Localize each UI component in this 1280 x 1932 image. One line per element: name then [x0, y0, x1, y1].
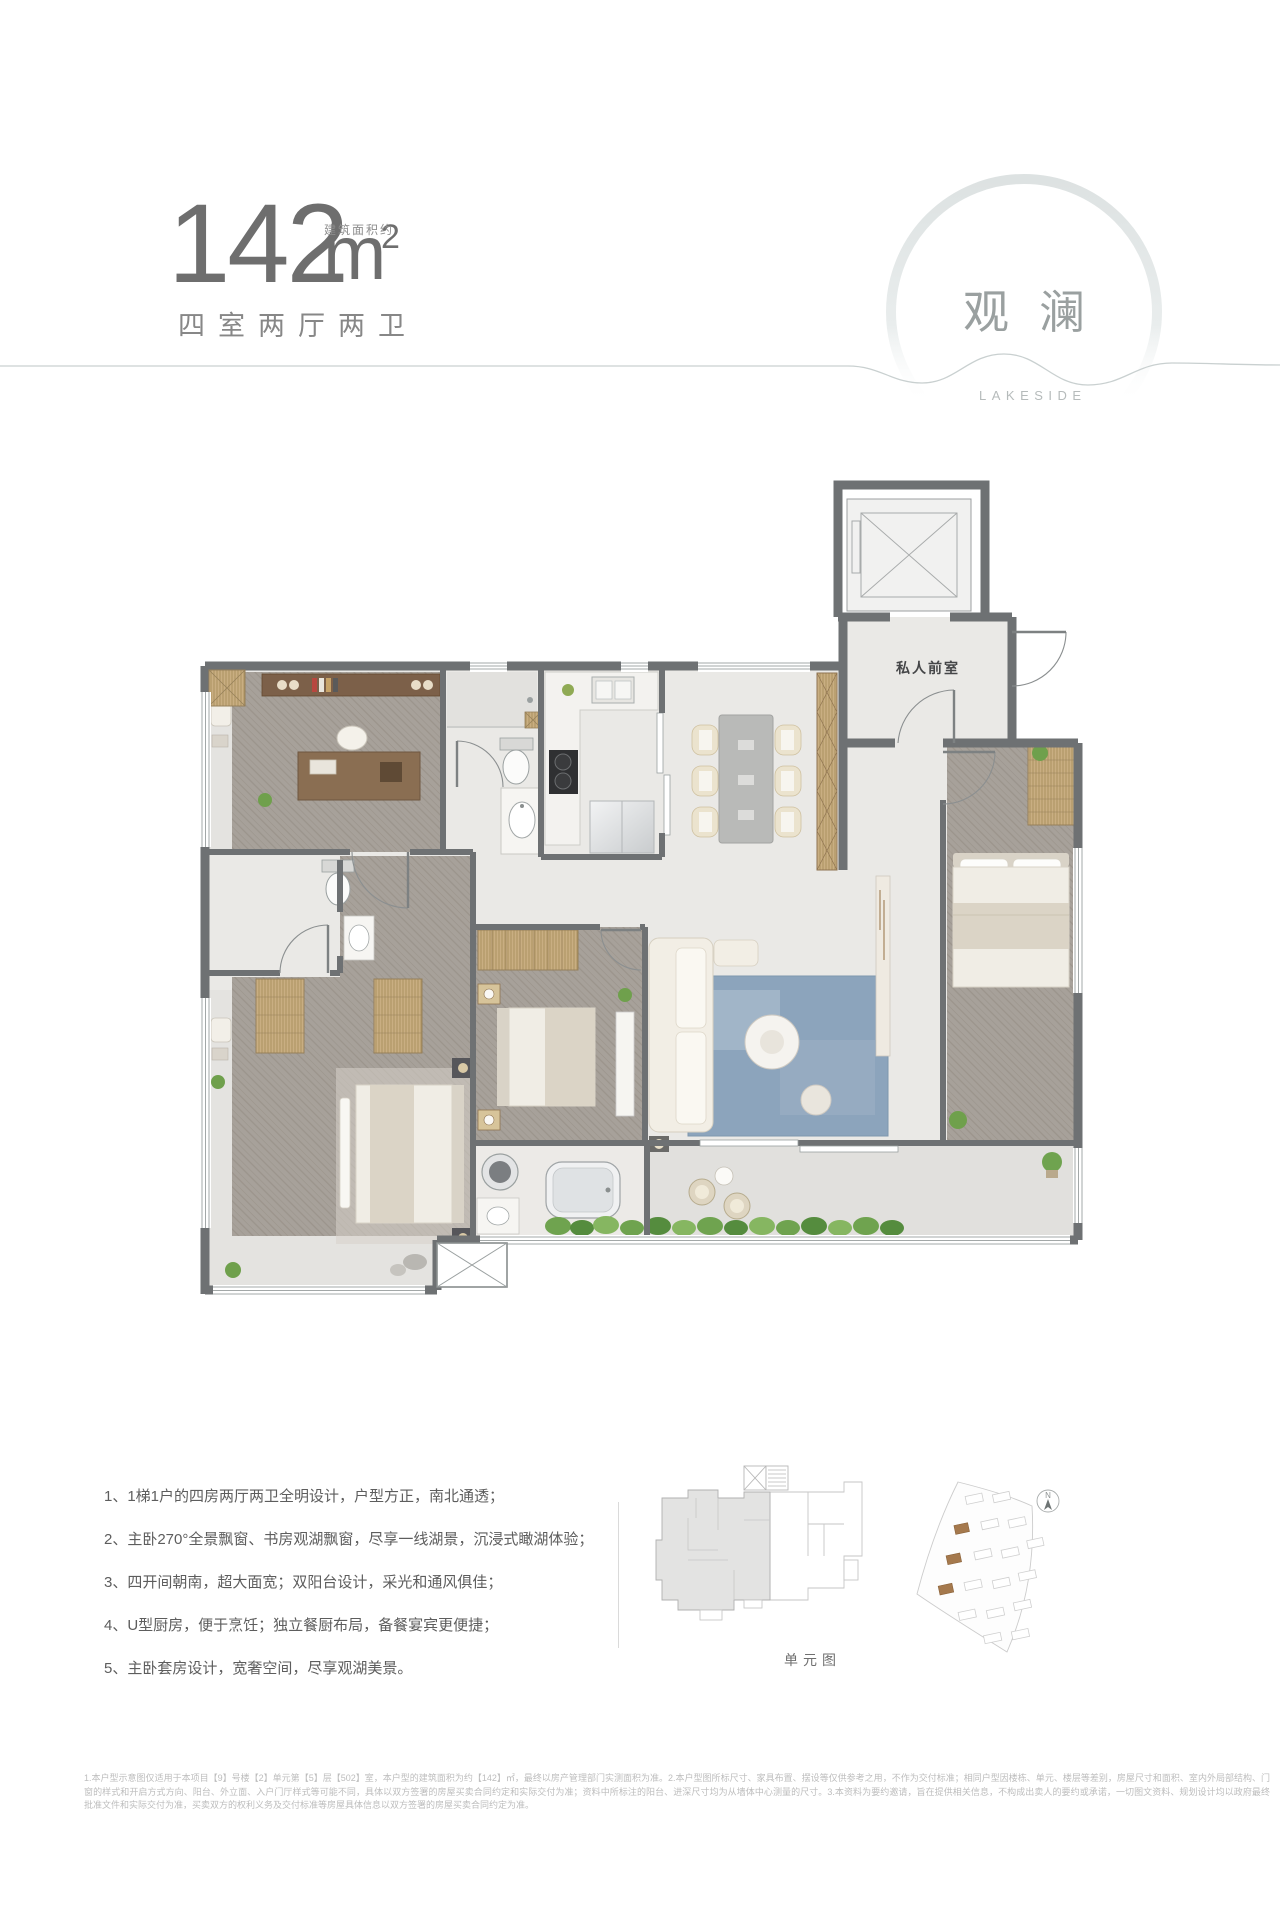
unit-diagram-caption: 单元图: [784, 1650, 841, 1670]
emblem-title-cn: 观澜: [963, 276, 1115, 342]
unit-diagram: [648, 1460, 888, 1650]
balcony-table: [715, 1167, 733, 1185]
bay-armchair: [211, 1018, 231, 1042]
wave-line: [0, 354, 1280, 385]
closet: [256, 979, 304, 1053]
tv-console: [876, 876, 890, 1056]
desk-chair: [337, 726, 367, 750]
feature-list: 1、1梯1户的四房两厅两卫全明设计，户型方正，南北通透； 2、主卧270°全景飘…: [104, 1489, 629, 1704]
svg-text:N: N: [1045, 1491, 1051, 1500]
feature-item: 4、U型厨房，便于烹饪；独立餐厨布局，备餐宴宾更便捷；: [104, 1618, 629, 1634]
floor-plan: 私人前室: [185, 480, 1090, 1320]
rocks: [403, 1254, 427, 1270]
ac-platform: [437, 1243, 507, 1287]
plant: [618, 988, 632, 1002]
bed-headboard: [497, 1008, 509, 1106]
vertical-divider: [618, 1502, 619, 1648]
wardrobe: [478, 930, 578, 970]
toilet: [500, 738, 533, 750]
console: [616, 1012, 634, 1116]
corner-shaft: [209, 670, 245, 706]
potted-plant: [1042, 1152, 1062, 1172]
plant: [258, 793, 272, 807]
bench: [340, 1098, 350, 1208]
feature-item: 3、四开间朝南，超大面宽；双阳台设计，采光和通风俱佳；: [104, 1575, 629, 1591]
plant: [562, 684, 574, 696]
elevator: [847, 499, 971, 611]
emblem-title-en: LAKESIDE: [979, 388, 1087, 403]
bed-headboard: [452, 1085, 464, 1223]
plant: [949, 1111, 967, 1129]
site-plan: N: [895, 1476, 1080, 1661]
disclaimer-text: 1.本户型示意图仅适用于本项目【9】号楼【2】单元第【5】层【502】室，本户型…: [84, 1772, 1270, 1813]
header-decoration: [0, 0, 1280, 480]
plant: [211, 1075, 225, 1089]
sliding-door: [657, 713, 663, 773]
foyer-label: 私人前室: [896, 660, 960, 676]
compass-icon: N: [1037, 1490, 1059, 1512]
feature-item: 2、主卧270°全景飘窗、书房观湖飘窗，尽享一线湖景，沉浸式瞰湖体验；: [104, 1532, 629, 1548]
site-boundary: [917, 1482, 1033, 1652]
core: [744, 1466, 788, 1490]
sliding-glass-door: [700, 1140, 798, 1146]
feature-item: 5、主卧套房设计，宽奢空间，尽享观湖美景。: [104, 1661, 629, 1677]
hall-vanity: [501, 788, 543, 854]
feature-item: 1、1梯1户的四房两厅两卫全明设计，户型方正，南北通透；: [104, 1489, 629, 1505]
closet: [374, 979, 422, 1053]
